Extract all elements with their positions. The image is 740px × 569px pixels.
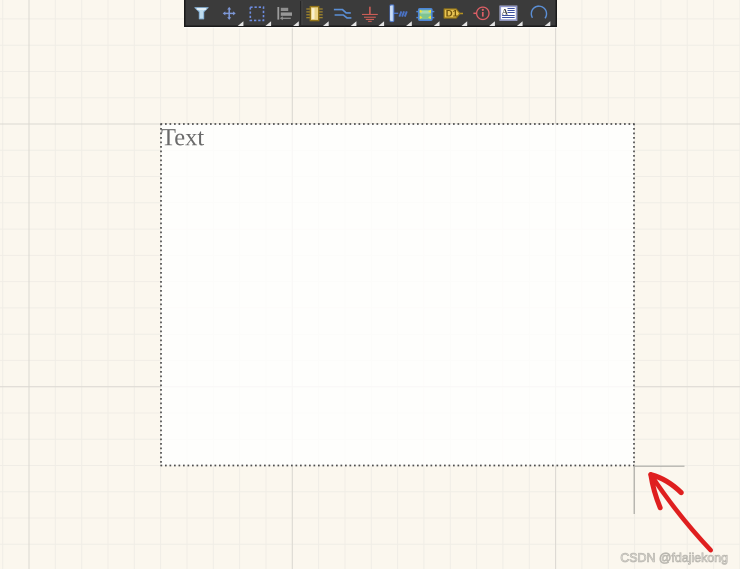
svg-text:D1: D1 xyxy=(446,9,459,20)
svg-text:A: A xyxy=(502,6,509,16)
